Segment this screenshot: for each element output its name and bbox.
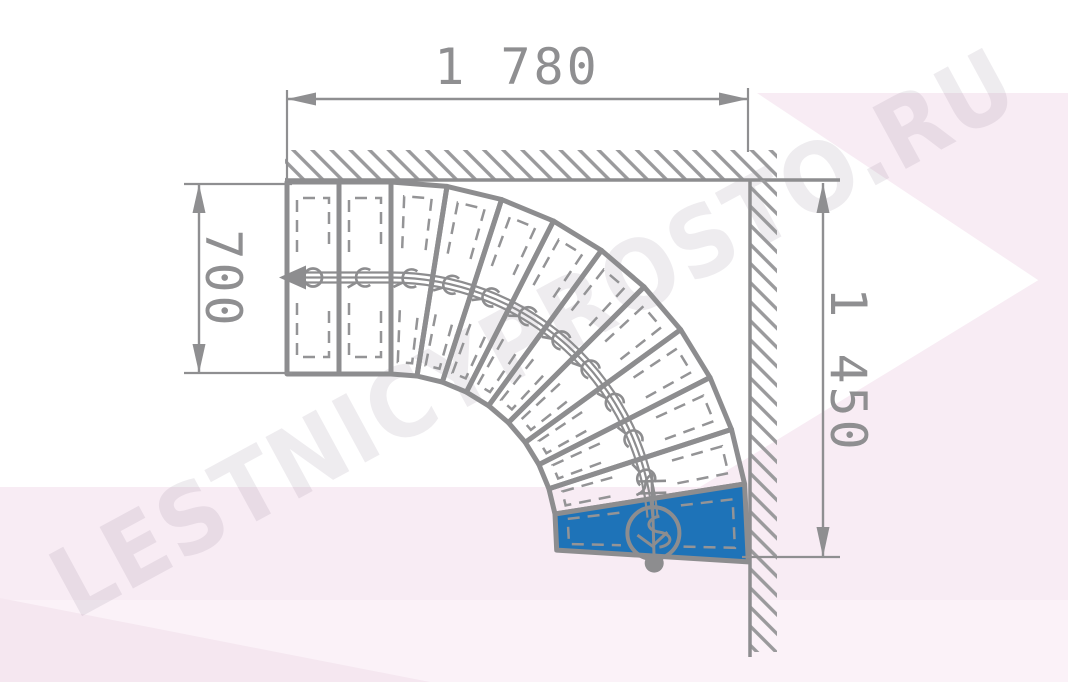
wall-right (750, 180, 777, 657)
newel-post-dot (645, 554, 664, 573)
walkline-symbol-tail (433, 287, 444, 290)
staircase-plan-canvas: LESTNICYPROSTO.RU 1 780 700 1 450 (0, 0, 1068, 682)
dimension-label-right: 1 450 (819, 287, 877, 453)
hidden-edge-dashed (349, 198, 381, 252)
wall-top-hatch (285, 150, 777, 180)
hidden-edge-dashed (297, 198, 329, 252)
walkline-exit-arrow (279, 266, 306, 290)
dimension-label-left: 700 (194, 229, 252, 328)
stair-plan-drawing: LESTNICYPROSTO.RU 1 780 700 1 450 (0, 0, 1068, 682)
arrowhead-right (719, 93, 748, 106)
dimension-left: 700 (184, 184, 292, 373)
walkline-symbol-tail (472, 299, 483, 300)
arrowhead-down (193, 344, 206, 373)
arrowhead-up (193, 184, 206, 213)
hidden-edge-dashed (448, 203, 485, 259)
start-post-detail (638, 481, 666, 482)
start-post-detail (638, 493, 666, 494)
hidden-edge-dashed (402, 196, 432, 250)
dimension-label-top: 1 780 (434, 38, 600, 96)
wall-top (285, 150, 840, 180)
hidden-edge-dashed (349, 303, 381, 357)
wall-right-hatch (750, 180, 777, 652)
hidden-edge-dashed (297, 303, 329, 357)
arrowhead-left (287, 93, 316, 106)
